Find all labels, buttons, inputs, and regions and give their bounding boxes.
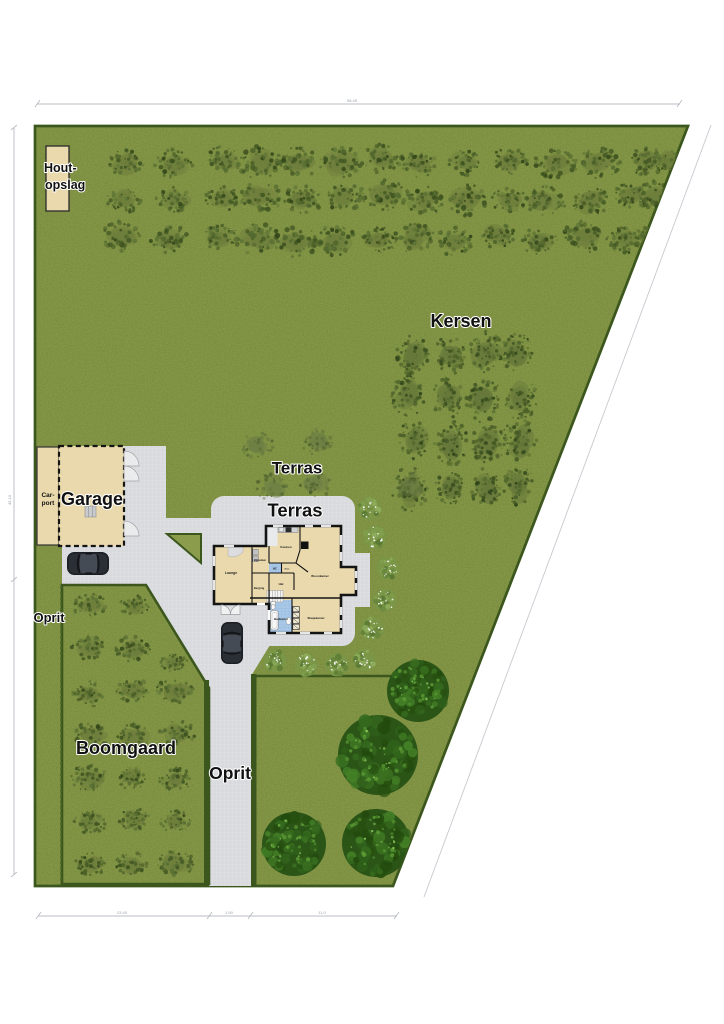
svg-text:Oprit: Oprit xyxy=(209,763,251,783)
svg-text:58.45: 58.45 xyxy=(347,98,358,103)
svg-text:WC: WC xyxy=(273,568,277,571)
svg-text:Badkamer: Badkamer xyxy=(274,617,289,621)
svg-text:45.10: 45.10 xyxy=(7,494,12,505)
svg-text:Hout-: Hout- xyxy=(44,161,77,175)
svg-text:Boomgaard: Boomgaard xyxy=(76,738,176,758)
svg-text:port: port xyxy=(42,500,55,507)
svg-text:Kersen: Kersen xyxy=(430,311,491,331)
svg-text:Terras: Terras xyxy=(267,500,322,521)
svg-text:11.0: 11.0 xyxy=(318,910,326,915)
svg-text:Keuken: Keuken xyxy=(280,545,291,549)
svg-text:Hal: Hal xyxy=(279,582,284,586)
svg-text:Garage: Garage xyxy=(61,489,123,509)
svg-text:23.40: 23.40 xyxy=(117,910,128,915)
svg-text:Terras: Terras xyxy=(272,459,323,478)
svg-text:Slaapkamer: Slaapkamer xyxy=(307,616,325,620)
svg-text:Car-: Car- xyxy=(41,492,54,499)
svg-text:Oprit: Oprit xyxy=(33,610,65,625)
svg-text:Kast: Kast xyxy=(285,568,290,571)
svg-text:1.90: 1.90 xyxy=(225,910,234,915)
svg-text:Woonkamer: Woonkamer xyxy=(311,574,329,578)
svg-text:Lounge: Lounge xyxy=(225,571,237,575)
svg-text:Berging: Berging xyxy=(254,586,265,590)
svg-text:opslag: opslag xyxy=(45,178,85,192)
svg-text:Bijkeuken: Bijkeuken xyxy=(254,558,267,562)
